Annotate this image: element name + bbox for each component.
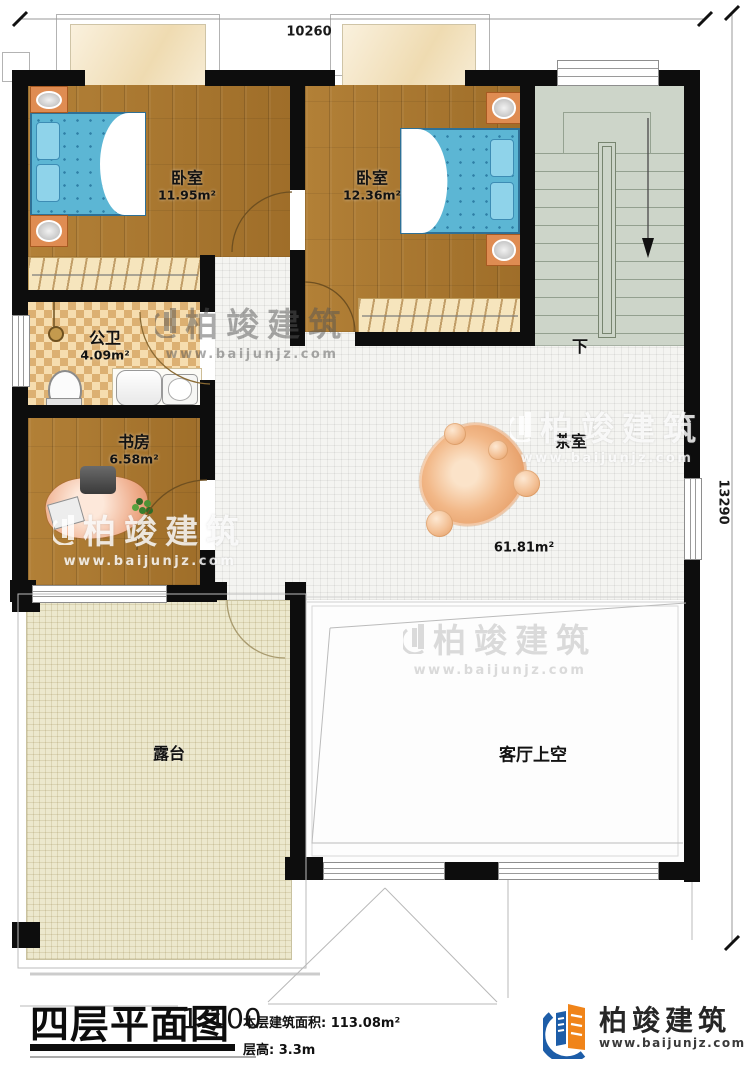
room-label-tea-room: 茶室 [555, 428, 587, 452]
room-label-bedroom-1: 卧室 11.95m² [158, 169, 216, 202]
wall-segment [290, 85, 305, 190]
bed [400, 128, 520, 234]
wall-segment [200, 550, 215, 585]
wall-segment [285, 582, 306, 600]
terrace-post [12, 922, 40, 948]
wall-segment [657, 862, 700, 880]
nightstand [30, 86, 68, 113]
dimension-top: 10260 [286, 25, 331, 40]
window [498, 862, 659, 880]
stairwell [535, 85, 684, 346]
pouf [426, 510, 453, 537]
room-terrace [26, 600, 292, 960]
bay-window [342, 24, 476, 87]
window [684, 478, 702, 560]
room-label-terrace: 露台 [153, 740, 185, 764]
room-label-study: 书房 6.58m² [109, 433, 158, 466]
wall-segment [200, 418, 215, 480]
room-label-bathroom: 公卫 4.09m² [80, 329, 129, 362]
window [12, 315, 30, 387]
pouf [488, 440, 508, 460]
wall-segment [200, 302, 215, 312]
brand-logo-text: 柏竣建筑 www.baijunjz.com [599, 1006, 746, 1051]
wall-segment [355, 332, 530, 346]
wall-segment [684, 558, 700, 882]
wall-segment [14, 405, 215, 418]
wall-segment [465, 70, 557, 86]
floor-height-info: 层高: 3.3m [243, 1039, 315, 1058]
nightstand [30, 215, 68, 247]
wall-segment [165, 585, 217, 602]
wall-segment [200, 380, 215, 418]
floor-plan: 卧室 11.95m² 卧室 12.36m² 公卫 4.09m² 书房 6.58m… [0, 0, 750, 1068]
pouf [513, 470, 540, 497]
nightstand [486, 234, 522, 266]
room-area-tea-room: 61.81m² [494, 541, 554, 556]
title-underline-thin [30, 1056, 256, 1058]
brand-logo: 柏竣建筑 www.baijunjz.com [543, 997, 746, 1059]
wall-segment [290, 862, 323, 880]
title-underline [30, 1044, 235, 1051]
sink [162, 374, 198, 405]
chair [80, 466, 116, 494]
bay-window [70, 24, 206, 87]
room-living-void [306, 600, 684, 862]
water-heater [116, 370, 162, 406]
bed-sheet [401, 129, 447, 233]
room-label-bedroom-2: 卧室 12.36m² [343, 169, 401, 202]
closet-bedroom-1 [28, 257, 202, 292]
window [32, 585, 167, 603]
stair-railing [598, 142, 616, 338]
wall-segment [443, 862, 498, 880]
plant [136, 498, 143, 505]
wall-segment [684, 70, 700, 478]
wall-segment [205, 70, 335, 86]
nightstand [486, 92, 522, 124]
pillow [36, 122, 60, 160]
floor-area-info: 本层建筑面积: 113.08m² [243, 1012, 400, 1031]
pillow [490, 182, 514, 220]
bed-sheet [100, 113, 145, 215]
window [323, 862, 445, 880]
wall-segment [290, 600, 306, 866]
pillow [36, 164, 60, 202]
brand-logo-icon [543, 997, 591, 1059]
wall-segment [12, 70, 28, 315]
wall-segment [14, 290, 215, 302]
closet-bedroom-2 [358, 298, 522, 334]
stairs-down-label: 下 [572, 333, 588, 357]
wall-segment [215, 582, 227, 600]
bed [30, 112, 146, 216]
wall-segment [290, 250, 305, 346]
room-label-living-void: 客厅上空 [499, 741, 567, 766]
pendant-lamp [48, 326, 64, 342]
dimension-right: 13290 [716, 479, 731, 524]
pillow [490, 139, 514, 177]
pouf [444, 423, 466, 445]
window [557, 60, 659, 86]
wall-segment [520, 85, 535, 346]
